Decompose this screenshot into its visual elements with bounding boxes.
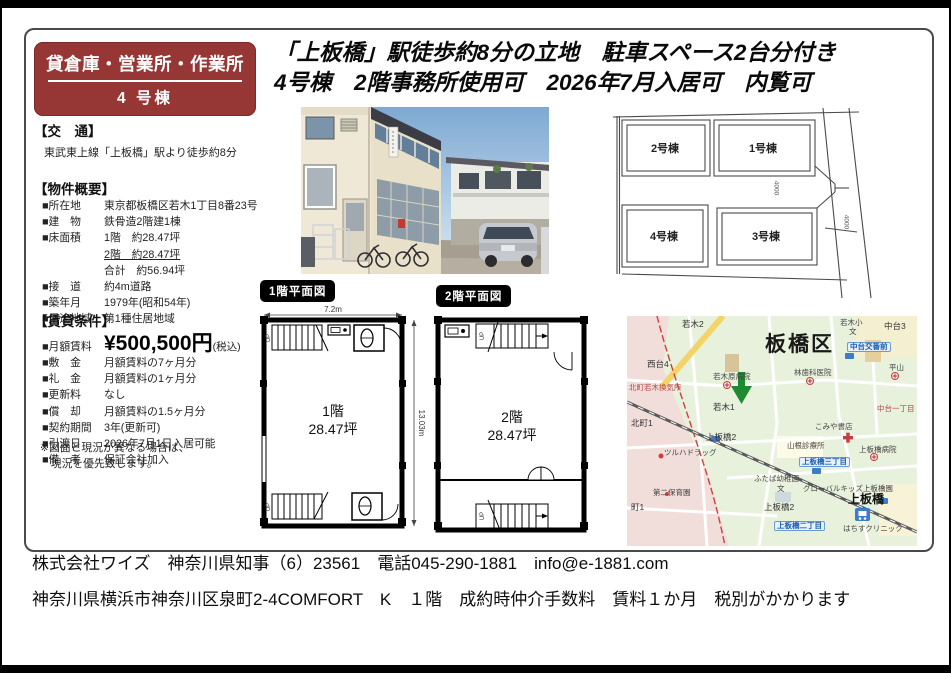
row-value: 月額賃料の1ヶ月分 — [104, 371, 196, 387]
row-value: なし — [104, 387, 126, 403]
agency-info: 株式会社ワイズ 神奈川県知事（6）23561 電話045-290-1881 in… — [32, 549, 669, 574]
badge-divider — [48, 80, 242, 82]
overview-row: 合計 約56.94坪 — [42, 263, 258, 279]
terms-row: ■更新料 なし — [42, 387, 216, 403]
terms-row: ■契約期間 3年(更新可) — [42, 420, 216, 436]
map-label: 町1 — [631, 503, 644, 512]
row-value: 合計 約56.94坪 — [104, 263, 185, 279]
map-label: 西台4 — [647, 360, 669, 369]
map-label: 文 — [777, 485, 785, 493]
floor1-area: 28.47坪 — [308, 421, 357, 437]
terms-row: ■礼 金 月額賃料の1ヶ月分 — [42, 371, 216, 387]
row-value: 約4m道路 — [104, 279, 151, 295]
site-plan-label: 3号棟 — [752, 228, 780, 244]
row-label: ■契約期間 — [42, 420, 104, 436]
map-label: 上板橋病院 — [859, 446, 897, 454]
overview-row: ■所在地 東京都板橋区若木1丁目8番23号 — [42, 198, 258, 214]
floor1-tag: 1階平面図 — [260, 280, 335, 302]
site-plan: 2号棟 1号棟 4号棟 3号棟 4000 4000 — [609, 108, 939, 300]
floor1-plan: 7.2m — [256, 304, 428, 536]
site-plan-label: 1号棟 — [749, 140, 777, 156]
map-label: 北町若木換気所 — [629, 384, 682, 392]
row-label: ■所在地 — [42, 198, 104, 214]
row-label — [42, 247, 104, 263]
row-value: 鉄骨造2階建1棟 — [104, 214, 181, 230]
note-line2: 現況を優先致します。 — [40, 456, 189, 472]
map-label: 文 — [849, 328, 857, 336]
map-label: 上板橋 — [848, 493, 884, 506]
site-plan-label: 2号棟 — [651, 140, 679, 156]
map-label: はちすクリニック — [843, 525, 903, 533]
access-header: 【交 通】 — [34, 120, 102, 140]
floor2-up-label-top: UP — [480, 332, 486, 340]
map-label: 若木1 — [713, 403, 735, 412]
flyer-page: 貸倉庫・営業所・作業所 4 号棟 「上板橋」駅徒歩約8分の立地 駐車スペース2台… — [0, 0, 951, 673]
floor1-width-dim: 7.2m — [324, 305, 342, 314]
row-label — [42, 263, 104, 279]
row-value: 2階 約28.47坪 — [104, 247, 180, 263]
row-label: ■礼 金 — [42, 371, 104, 387]
rent-value: ¥500,500円 — [104, 327, 213, 357]
floor2-plan-drawing: UP 2階 28.47坪 — [432, 312, 592, 538]
map-label: 中台3 — [884, 322, 906, 331]
map-label: 第二保育園 — [653, 489, 691, 497]
overview-row: ■床面積 1階 約28.47坪 — [42, 230, 258, 246]
floor2-plan: UP 2階 28.47坪 — [432, 312, 592, 538]
map-label: こみや書店 — [815, 423, 853, 431]
building-photo — [301, 107, 549, 274]
row-value: 1階 約28.47坪 — [104, 230, 180, 246]
terms-row: ■敷 金 月額賃料の7ヶ月分 — [42, 355, 216, 371]
badge-line1: 貸倉庫・営業所・作業所 — [34, 51, 256, 76]
map-label: 林歯科医院 — [794, 369, 832, 377]
access-text: 東武東上線「上板橋」駅より徒歩約8分 — [44, 144, 237, 160]
map-label: 北町1 — [631, 419, 653, 428]
rent-label: ■月額賃料 — [42, 338, 104, 354]
floor2-area: 28.47坪 — [487, 427, 536, 443]
overview-row: ■接 道 約4m道路 — [42, 279, 258, 295]
floor2-tag: 2階平面図 — [436, 285, 511, 307]
floor1-label: 1階 — [322, 403, 344, 419]
row-value: 東京都板橋区若木1丁目8番23号 — [104, 198, 258, 214]
map-label: 上板橋2 — [706, 433, 736, 442]
map-label: 中台一丁目 — [877, 405, 915, 413]
overview-row: 2階 約28.47坪 — [42, 247, 258, 263]
map-label: 若木原病院 — [713, 373, 751, 381]
map-label: ふたば幼稚園 — [754, 475, 799, 483]
row-label: ■敷 金 — [42, 355, 104, 371]
agency-address: 神奈川県横浜市神奈川区泉町2-4COMFORT K １階 成約時仲介手数料 賃料… — [32, 585, 850, 610]
floor1-height-dim: 13.03m — [417, 410, 426, 437]
map-label: 平山 — [889, 364, 904, 372]
row-label: ■建 物 — [42, 214, 104, 230]
row-label: ■更新料 — [42, 387, 104, 403]
headline-line2: 4号棟 2階事務所使用可 2026年7月入居可 内覧可 — [274, 68, 924, 98]
site-plan-label: 4000 — [843, 215, 850, 229]
building-photo-image — [301, 107, 549, 274]
overview-row: ■建 物 鉄骨造2階建1棟 — [42, 214, 258, 230]
overview-row: ■築年月 1979年(昭和54年) — [42, 295, 258, 311]
map-label: 山根診療所 — [787, 442, 825, 450]
disclaimer-note: ※図面と現況が異なる場合は、 現況を優先致します。 — [40, 440, 189, 472]
flyer-frame: 貸倉庫・営業所・作業所 4 号棟 「上板橋」駅徒歩約8分の立地 駐車スペース2台… — [24, 28, 934, 552]
location-map: 若木2 板橋区 若木小 文 中台3 中台交番前 西台4 平山 若木原病院 — [627, 316, 917, 546]
overview-header: 【物件概要】 — [34, 178, 115, 198]
map-label: 上板橋2 — [764, 503, 794, 512]
map-label: 上板橋二丁目 — [774, 521, 825, 531]
site-plan-label: 4000 — [773, 181, 780, 195]
row-label: ■償 却 — [42, 404, 104, 420]
row-value: 1979年(昭和54年) — [104, 295, 190, 311]
row-label: ■接 道 — [42, 279, 104, 295]
floor2-label: 2階 — [501, 409, 523, 425]
row-value: 3年(更新可) — [104, 420, 160, 436]
floor1-up-label-bottom: UP — [266, 503, 272, 511]
note-line1: ※図面と現況が異なる場合は、 — [40, 440, 189, 456]
map-label: 上板橋三丁目 — [799, 457, 850, 467]
headline: 「上板橋」駅徒歩約8分の立地 駐車スペース2台分付き 4号棟 2階事務所使用可 … — [274, 38, 924, 98]
site-plan-label: 4号棟 — [650, 228, 678, 244]
property-type-badge: 貸倉庫・営業所・作業所 4 号棟 — [34, 42, 256, 116]
floor2-up-label-bottom: UP — [480, 512, 486, 520]
floor1-plan-drawing: 7.2m — [256, 304, 428, 536]
map-label: 若木小 — [840, 319, 863, 327]
row-value: 月額賃料の1.5ヶ月分 — [104, 404, 205, 420]
map-label: 中台交番前 — [847, 342, 891, 352]
headline-line1: 「上板橋」駅徒歩約8分の立地 駐車スペース2台分付き — [274, 38, 924, 68]
row-label: ■床面積 — [42, 230, 104, 246]
rent-row: ■月額賃料 ¥500,500円 (税込) — [42, 327, 241, 357]
site-plan-drawing — [609, 108, 939, 300]
map-label: 若木2 — [682, 320, 704, 329]
row-label: ■築年月 — [42, 295, 104, 311]
badge-line2: 4 号棟 — [34, 86, 256, 108]
terms-row: ■償 却 月額賃料の1.5ヶ月分 — [42, 404, 216, 420]
rent-suffix: (税込) — [213, 339, 241, 354]
floor1-up-label-top: UP — [266, 334, 272, 342]
row-value: 月額賃料の7ヶ月分 — [104, 355, 196, 371]
map-label: ツルハドラッグ — [664, 449, 717, 457]
overview-rows: ■所在地 東京都板橋区若木1丁目8番23号 ■建 物 鉄骨造2階建1棟 ■床面積… — [42, 198, 258, 328]
map-label: 板橋区 — [765, 334, 834, 356]
